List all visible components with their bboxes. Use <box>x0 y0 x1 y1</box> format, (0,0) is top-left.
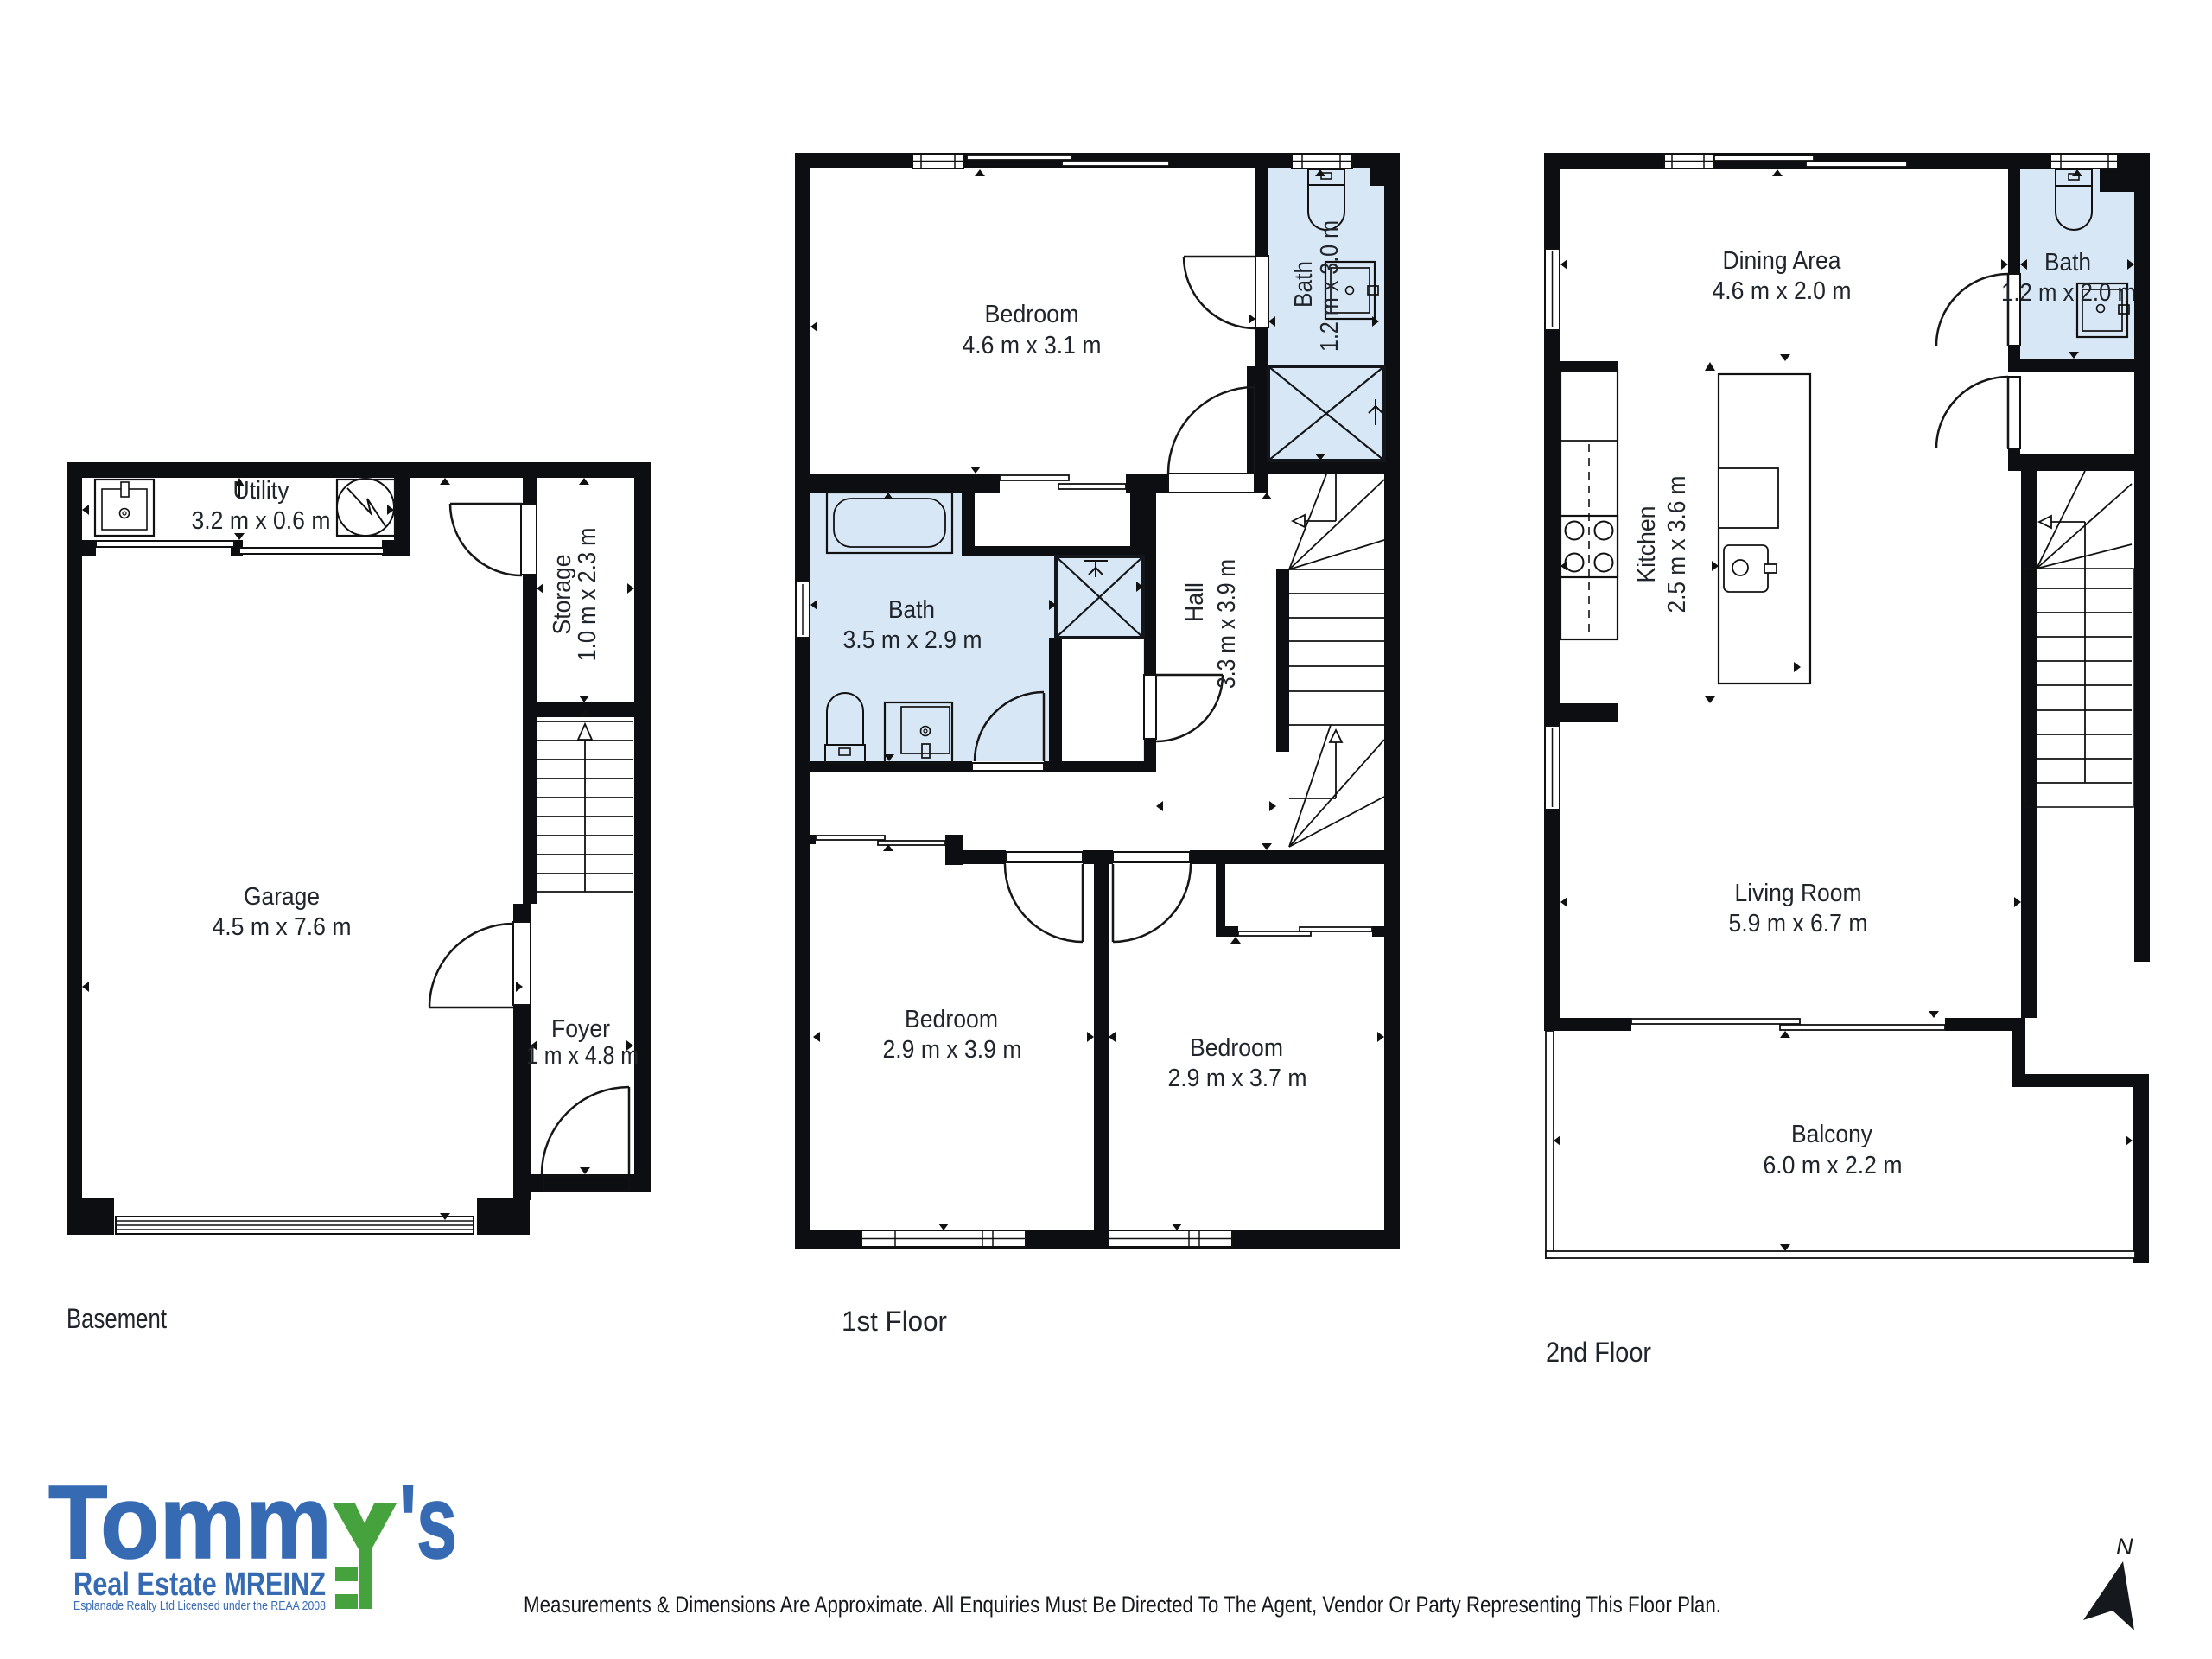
svg-text:1.2 m x 3.0 m: 1.2 m x 3.0 m <box>1316 220 1344 352</box>
svg-text:Measurements & Dimensions Are: Measurements & Dimensions Are Approximat… <box>524 1592 1721 1618</box>
svg-text:5.9 m x 6.7 m: 5.9 m x 6.7 m <box>1729 910 1868 938</box>
svg-text:Basement: Basement <box>67 1303 167 1334</box>
svg-text:1.2 m x 2.0 m: 1.2 m x 2.0 m <box>2001 279 2136 307</box>
svg-text:Foyer: Foyer <box>551 1015 610 1043</box>
svg-text:Utility: Utility <box>233 477 290 505</box>
svg-text:Bath: Bath <box>2044 249 2091 276</box>
svg-text:Bedroom: Bedroom <box>1190 1034 1283 1062</box>
svg-text:Dining Area: Dining Area <box>1723 247 1841 275</box>
svg-text:Balcony: Balcony <box>1791 1121 1873 1148</box>
svg-text:2nd Floor: 2nd Floor <box>1546 1337 1651 1368</box>
svg-text:4.5 m x 7.6 m: 4.5 m x 7.6 m <box>213 913 352 941</box>
svg-text:2.9 m x 3.7 m: 2.9 m x 3.7 m <box>1168 1065 1307 1092</box>
svg-text:'s: 's <box>399 1463 457 1580</box>
svg-text:Real Estate MREINZ: Real Estate MREINZ <box>73 1567 326 1603</box>
svg-text:Storage: Storage <box>549 555 576 635</box>
svg-text:2.5 m x 3.6 m: 2.5 m x 3.6 m <box>1663 476 1691 613</box>
svg-text:N: N <box>2116 1534 2133 1560</box>
svg-text:Esplanade Realty Ltd Licensed: Esplanade Realty Ltd Licensed under the … <box>73 1599 326 1613</box>
svg-text:1.0 m x 2.3 m: 1.0 m x 2.3 m <box>574 528 601 662</box>
svg-text:1st Floor: 1st Floor <box>842 1306 947 1337</box>
svg-text:3.2 m x 0.6 m: 3.2 m x 0.6 m <box>192 507 331 535</box>
svg-text:Garage: Garage <box>244 883 320 911</box>
svg-text:2.9 m x 3.9 m: 2.9 m x 3.9 m <box>883 1036 1022 1064</box>
svg-text:Kitchen: Kitchen <box>1633 506 1661 583</box>
svg-text:3.3 m x 3.9 m: 3.3 m x 3.9 m <box>1213 559 1241 689</box>
svg-text:6.0 m x 2.2 m: 6.0 m x 2.2 m <box>1764 1152 1903 1179</box>
svg-text:Living Room: Living Room <box>1735 880 1862 907</box>
svg-text:Bedroom: Bedroom <box>985 301 1079 328</box>
svg-text:4.6 m x 3.1 m: 4.6 m x 3.1 m <box>963 332 1102 359</box>
svg-text:4.6 m x 2.0 m: 4.6 m x 2.0 m <box>1713 277 1852 305</box>
svg-text:Bedroom: Bedroom <box>905 1006 998 1033</box>
svg-text:Hall: Hall <box>1181 582 1209 622</box>
svg-text:3.5 m x 2.9 m: 3.5 m x 2.9 m <box>843 626 982 654</box>
svg-text:Tomm: Tomm <box>48 1463 332 1580</box>
svg-text:1 m x 4.8 m: 1 m x 4.8 m <box>526 1042 639 1070</box>
svg-text:Bath: Bath <box>888 596 935 624</box>
svg-text:Bath: Bath <box>1290 261 1318 308</box>
